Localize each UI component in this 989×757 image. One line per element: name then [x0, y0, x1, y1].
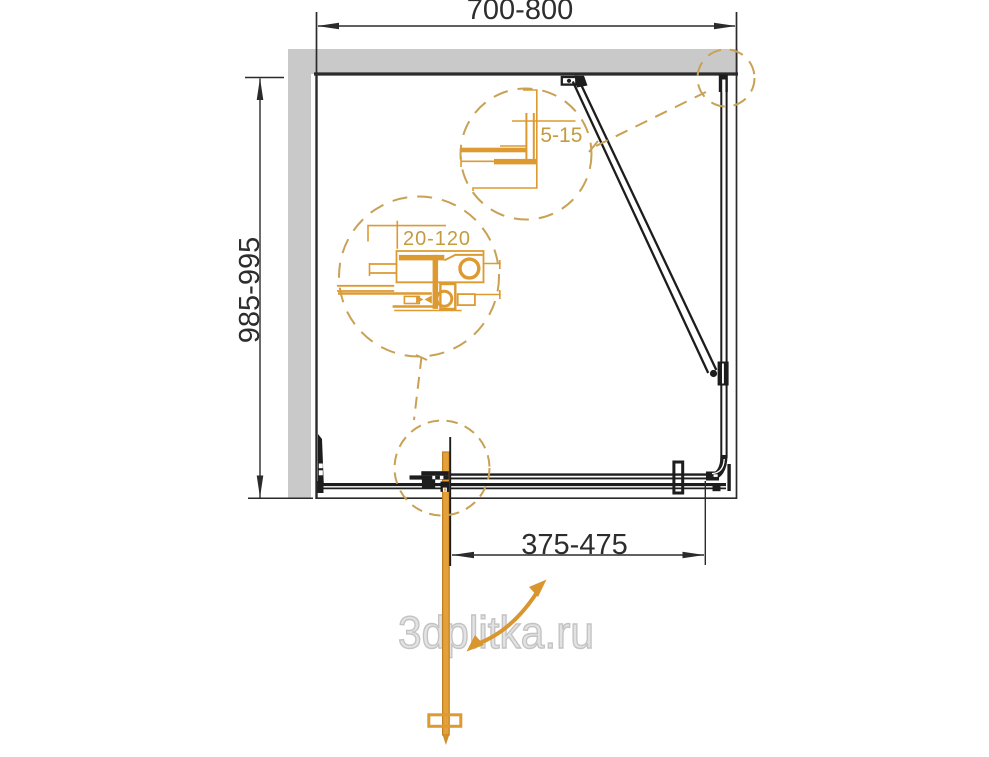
- svg-text:5-15: 5-15: [540, 124, 582, 147]
- svg-text:375-475: 375-475: [521, 529, 627, 561]
- svg-text:20-120: 20-120: [403, 228, 471, 250]
- svg-text:700-800: 700-800: [467, 0, 573, 26]
- svg-text:985-995: 985-995: [234, 237, 266, 343]
